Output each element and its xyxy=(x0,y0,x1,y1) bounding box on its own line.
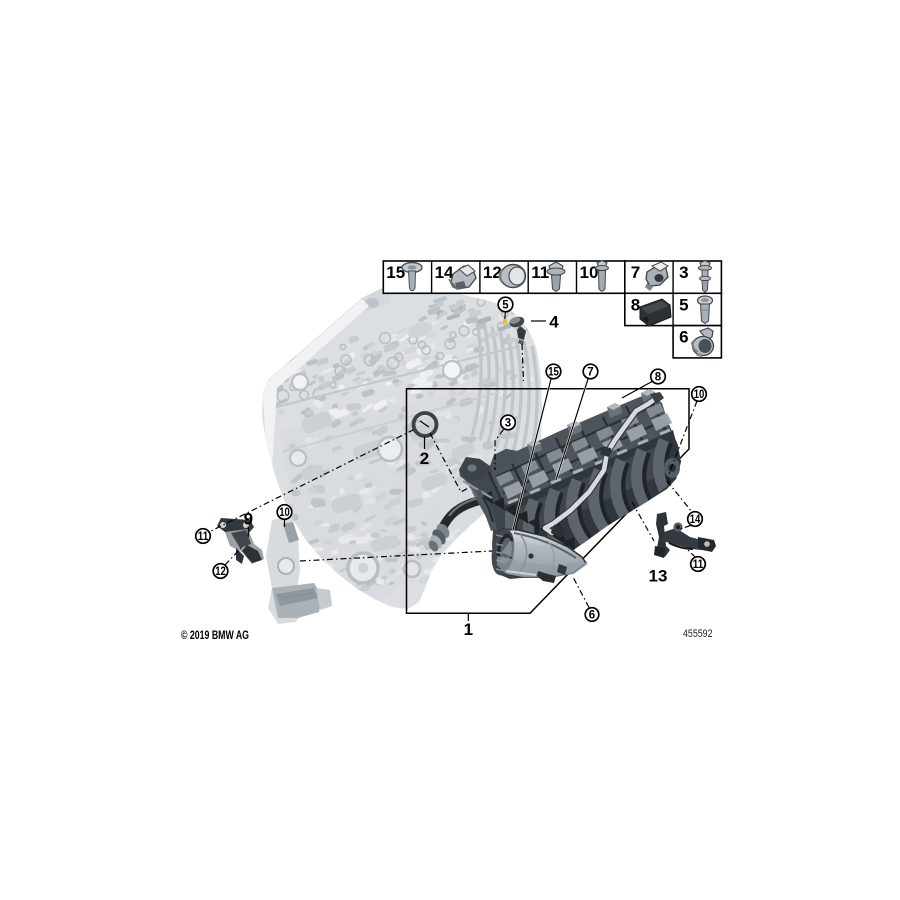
svg-text:3: 3 xyxy=(505,418,511,430)
svg-text:11: 11 xyxy=(198,531,209,543)
svg-text:13: 13 xyxy=(649,567,668,586)
svg-text:10: 10 xyxy=(694,389,705,401)
svg-text:6: 6 xyxy=(679,328,688,347)
svg-text:7: 7 xyxy=(587,367,593,379)
svg-text:7: 7 xyxy=(631,263,640,282)
svg-text:9: 9 xyxy=(244,510,253,529)
svg-text:15: 15 xyxy=(548,367,559,379)
svg-text:3: 3 xyxy=(679,263,688,282)
svg-text:12: 12 xyxy=(215,566,226,578)
svg-text:5: 5 xyxy=(502,300,509,312)
svg-text:4: 4 xyxy=(549,313,559,332)
svg-text:8: 8 xyxy=(631,295,640,314)
svg-text:14: 14 xyxy=(690,514,701,526)
svg-text:8: 8 xyxy=(655,372,662,384)
svg-text:455592: 455592 xyxy=(683,628,713,640)
svg-text:10: 10 xyxy=(580,263,599,282)
svg-text:2: 2 xyxy=(420,449,429,468)
svg-text:1: 1 xyxy=(464,620,473,639)
svg-text:6: 6 xyxy=(589,610,595,622)
svg-text:11: 11 xyxy=(531,263,549,282)
svg-text:11: 11 xyxy=(693,559,704,571)
svg-text:© 2019 BMW AG: © 2019 BMW AG xyxy=(181,630,249,642)
svg-text:10: 10 xyxy=(279,507,290,519)
svg-text:5: 5 xyxy=(679,295,688,314)
